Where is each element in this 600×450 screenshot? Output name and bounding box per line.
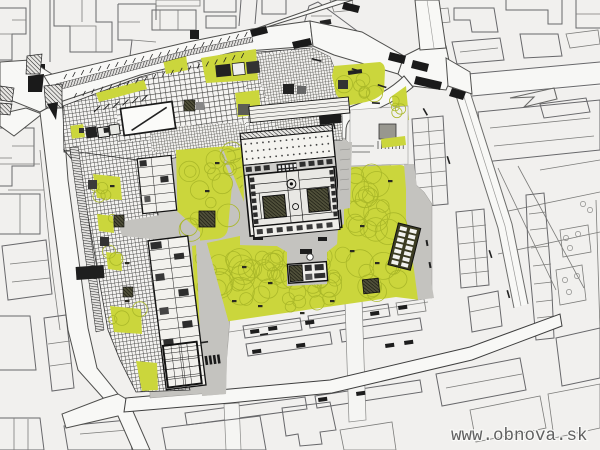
svg-text:www.obnova.sk: www.obnova.sk [451,426,588,446]
